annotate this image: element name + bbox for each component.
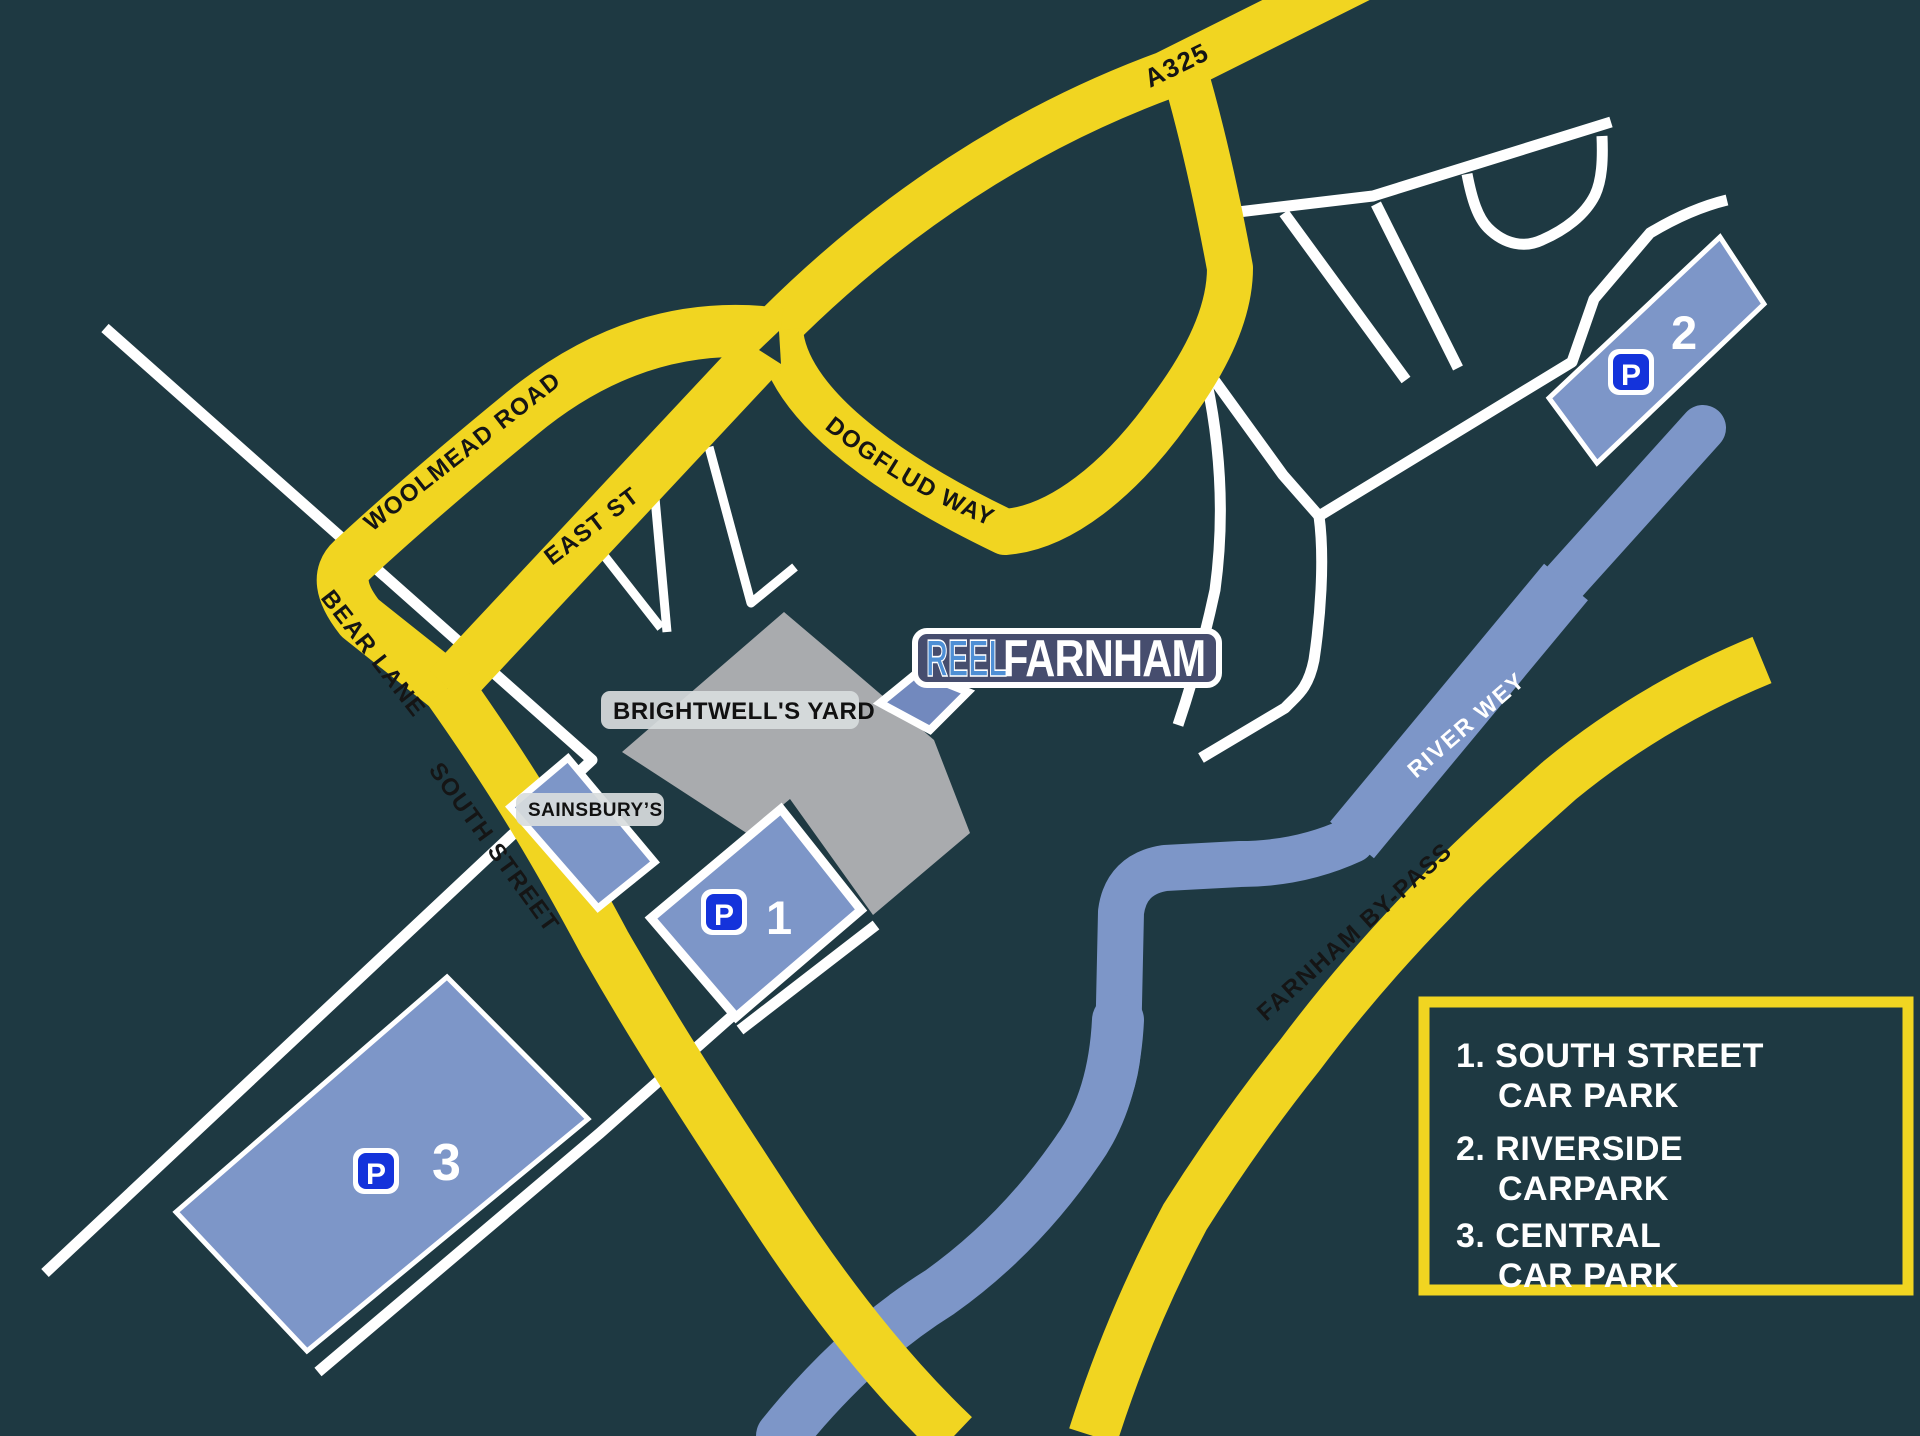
svg-text:FARNHAM: FARNHAM xyxy=(1003,629,1205,688)
svg-text:CAR PARK: CAR PARK xyxy=(1498,1077,1679,1115)
svg-text:BRIGHTWELL'S YARD: BRIGHTWELL'S YARD xyxy=(613,698,875,725)
svg-text:P: P xyxy=(714,899,734,932)
svg-text:CAR PARK: CAR PARK xyxy=(1498,1257,1679,1295)
svg-text:2: 2 xyxy=(1671,306,1697,359)
svg-text:3. CENTRAL: 3. CENTRAL xyxy=(1456,1217,1661,1255)
svg-text:REEL: REEL xyxy=(926,630,1007,689)
svg-text:1: 1 xyxy=(766,891,792,944)
svg-text:P: P xyxy=(1621,359,1641,392)
svg-text:2. RIVERSIDE: 2. RIVERSIDE xyxy=(1456,1130,1683,1168)
svg-text:P: P xyxy=(366,1158,386,1191)
svg-text:1. SOUTH STREET: 1. SOUTH STREET xyxy=(1456,1037,1764,1075)
svg-text:CARPARK: CARPARK xyxy=(1498,1170,1669,1208)
svg-text:SAINSBURY’S: SAINSBURY’S xyxy=(528,800,663,821)
svg-text:3: 3 xyxy=(432,1134,461,1192)
